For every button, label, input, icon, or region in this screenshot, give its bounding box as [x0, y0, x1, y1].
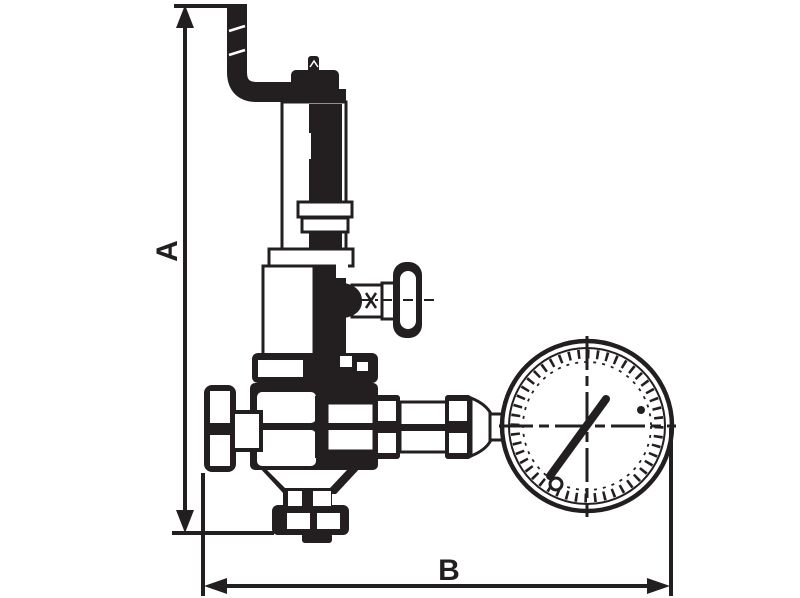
arrowhead-down-icon	[176, 510, 194, 533]
bell-face	[317, 513, 340, 529]
lock-nut-upper	[298, 202, 352, 217]
neck-face	[313, 491, 331, 506]
union-centerband	[400, 424, 449, 431]
lock-nut-lower	[302, 218, 348, 232]
bell-face	[287, 513, 310, 529]
handwheel-face-lower	[210, 435, 230, 466]
outlet-stub	[302, 533, 332, 543]
gauge-connection	[315, 395, 507, 459]
handwheel-face-upper	[210, 391, 230, 423]
flange-2-face	[449, 433, 467, 453]
arrowhead-right-icon	[647, 578, 670, 594]
hex-facet	[357, 362, 368, 371]
gauge-screw	[550, 478, 562, 490]
technical-drawing-page: A B	[0, 0, 800, 598]
arrowhead-left-icon	[204, 578, 227, 594]
outlet-pipe-centerband	[327, 423, 374, 430]
screw-slot	[306, 133, 311, 159]
adapter-cone	[471, 398, 491, 456]
arrowhead-up-icon	[176, 5, 194, 28]
flange-1-face	[378, 433, 396, 453]
bonnet-hex-nut	[252, 353, 378, 383]
gauge-dot	[637, 406, 645, 414]
body-face-upper	[257, 392, 316, 423]
pressure-gauge	[499, 336, 676, 517]
valve-technical-drawing: A B	[0, 0, 800, 598]
handwheel-stem	[233, 412, 261, 450]
neck-face	[288, 491, 302, 506]
body-face-lower	[257, 430, 316, 466]
dimension-label-B: B	[438, 554, 460, 587]
t-handle-valve	[340, 262, 437, 338]
flange-2-face	[449, 401, 467, 421]
bonnet-bell	[263, 266, 314, 355]
hex-facet	[340, 356, 352, 367]
column-notch	[336, 256, 348, 278]
dimension-label-A: A	[151, 240, 184, 262]
flange-1-face	[378, 401, 396, 421]
hex-facet	[258, 360, 303, 377]
